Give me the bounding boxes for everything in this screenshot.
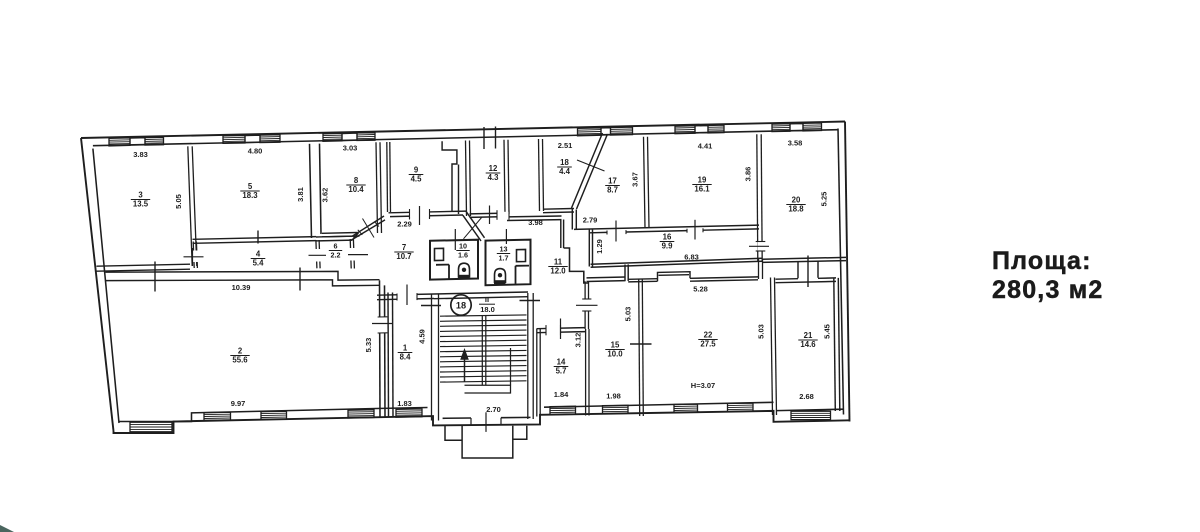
svg-text:16.1: 16.1 <box>694 184 710 193</box>
svg-text:5.25: 5.25 <box>820 192 829 207</box>
svg-text:2.29: 2.29 <box>397 220 412 229</box>
svg-text:4.4: 4.4 <box>559 167 571 176</box>
svg-text:10.0: 10.0 <box>607 349 623 358</box>
svg-text:10.39: 10.39 <box>232 283 251 292</box>
svg-text:5.45: 5.45 <box>823 324 832 339</box>
svg-text:5.05: 5.05 <box>174 194 183 209</box>
svg-text:3.98: 3.98 <box>528 218 543 227</box>
svg-text:8: 8 <box>354 176 359 185</box>
svg-text:3.81: 3.81 <box>296 187 305 202</box>
svg-text:11: 11 <box>554 258 563 267</box>
svg-text:18: 18 <box>560 158 569 167</box>
svg-text:5.03: 5.03 <box>624 307 633 322</box>
svg-text:2.70: 2.70 <box>486 405 501 414</box>
svg-text:3.83: 3.83 <box>133 150 148 159</box>
svg-text:8.4: 8.4 <box>400 352 412 361</box>
svg-text:4.80: 4.80 <box>248 147 263 156</box>
svg-text:1.7: 1.7 <box>499 253 509 262</box>
svg-text:9.9: 9.9 <box>662 241 674 250</box>
svg-text:1.98: 1.98 <box>606 392 621 401</box>
svg-text:3: 3 <box>138 191 143 200</box>
svg-text:1.84: 1.84 <box>554 390 569 399</box>
svg-text:21: 21 <box>804 331 813 340</box>
svg-text:3.62: 3.62 <box>321 188 330 203</box>
svg-text:2.79: 2.79 <box>583 216 598 225</box>
svg-text:8.7: 8.7 <box>607 185 618 194</box>
svg-text:4.59: 4.59 <box>418 329 427 344</box>
svg-text:19: 19 <box>698 176 707 185</box>
svg-text:9: 9 <box>414 166 419 175</box>
svg-text:2.51: 2.51 <box>558 141 573 150</box>
svg-text:4: 4 <box>256 250 261 259</box>
svg-text:3.58: 3.58 <box>788 139 803 148</box>
svg-text:4.41: 4.41 <box>698 142 713 151</box>
svg-text:18.3: 18.3 <box>242 191 258 200</box>
svg-text:10.7: 10.7 <box>396 252 411 261</box>
svg-text:5.7: 5.7 <box>556 366 567 375</box>
svg-text:3.67: 3.67 <box>631 172 640 187</box>
svg-text:1.83: 1.83 <box>397 399 412 408</box>
svg-text:4.5: 4.5 <box>411 174 423 183</box>
svg-text:14.6: 14.6 <box>800 340 816 349</box>
svg-text:3.12: 3.12 <box>574 333 583 348</box>
svg-text:16: 16 <box>663 233 672 242</box>
svg-text:55.6: 55.6 <box>232 355 248 364</box>
svg-text:Н=3.07: Н=3.07 <box>691 381 715 390</box>
svg-text:13.5: 13.5 <box>133 199 149 208</box>
svg-text:18.8: 18.8 <box>788 204 804 213</box>
svg-text:2: 2 <box>238 347 243 356</box>
svg-text:2.68: 2.68 <box>799 392 814 401</box>
svg-text:17: 17 <box>608 177 617 186</box>
svg-text:10.4: 10.4 <box>348 185 364 194</box>
svg-text:5.33: 5.33 <box>364 338 373 353</box>
svg-text:5: 5 <box>248 182 253 191</box>
svg-text:13: 13 <box>500 245 508 254</box>
svg-text:15: 15 <box>611 341 620 350</box>
svg-text:1: 1 <box>403 344 408 353</box>
svg-text:7: 7 <box>402 243 406 252</box>
svg-text:27.5: 27.5 <box>700 339 716 348</box>
svg-text:18.0: 18.0 <box>480 305 495 314</box>
svg-text:3.03: 3.03 <box>343 144 358 153</box>
svg-text:2.2: 2.2 <box>331 250 341 259</box>
svg-text:22: 22 <box>704 331 713 340</box>
svg-text:12: 12 <box>489 164 498 173</box>
svg-text:1.6: 1.6 <box>458 250 468 259</box>
svg-text:18: 18 <box>456 301 466 311</box>
svg-text:14: 14 <box>557 358 566 367</box>
svg-text:II: II <box>485 295 489 304</box>
svg-text:4.3: 4.3 <box>488 173 500 182</box>
svg-text:5.4: 5.4 <box>253 258 265 267</box>
svg-text:6: 6 <box>334 242 338 251</box>
svg-text:1.29: 1.29 <box>595 239 604 254</box>
svg-text:5.28: 5.28 <box>693 285 708 294</box>
svg-text:20: 20 <box>792 196 801 205</box>
svg-text:10: 10 <box>459 242 467 251</box>
svg-text:9.97: 9.97 <box>231 399 246 408</box>
svg-text:5.03: 5.03 <box>757 324 766 339</box>
svg-text:12.0: 12.0 <box>550 266 566 275</box>
svg-text:6.83: 6.83 <box>684 253 699 262</box>
svg-text:3.86: 3.86 <box>744 167 753 182</box>
